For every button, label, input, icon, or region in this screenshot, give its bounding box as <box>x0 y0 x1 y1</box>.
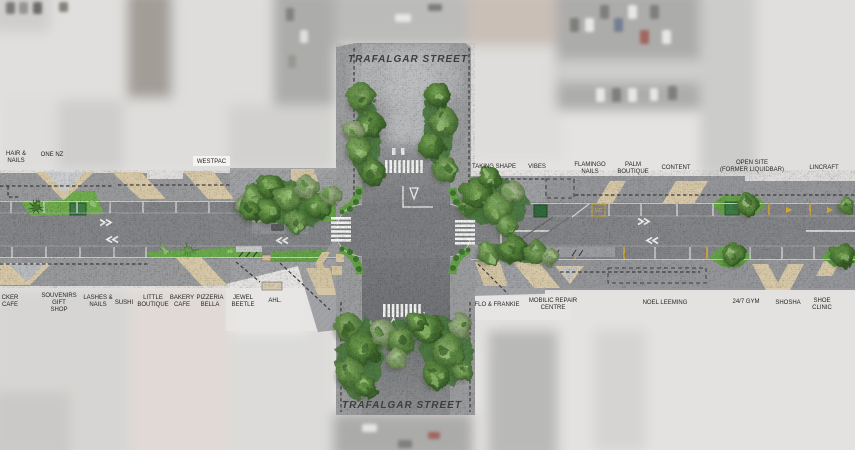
svg-text:TAKING SHAPE: TAKING SHAPE <box>472 164 516 170</box>
svg-text:CAFE: CAFE <box>174 302 190 308</box>
svg-text:CENTRE: CENTRE <box>541 305 566 311</box>
svg-text:CLINIC: CLINIC <box>812 305 832 311</box>
svg-text:SHOP: SHOP <box>50 307 67 313</box>
svg-text:NOEL LEEMING: NOEL LEEMING <box>643 300 688 306</box>
svg-text:LASHES &: LASHES & <box>83 295 112 301</box>
svg-text:WESTPAC: WESTPAC <box>197 159 227 165</box>
svg-text:JEWEL: JEWEL <box>233 295 254 301</box>
svg-text:FLO & FRANKIE: FLO & FRANKIE <box>474 302 519 308</box>
svg-text:NAILS: NAILS <box>7 158 24 164</box>
svg-text:PIZZERIA: PIZZERIA <box>196 295 223 301</box>
svg-text:SUSHI: SUSHI <box>115 300 134 306</box>
svg-text:SOUVENIRS: SOUVENIRS <box>41 293 76 299</box>
svg-text:VIBES: VIBES <box>528 164 546 170</box>
svg-text:ONE NZ: ONE NZ <box>41 152 64 158</box>
svg-text:SHOE: SHOE <box>813 298 830 304</box>
svg-text:BOUTIQUE: BOUTIQUE <box>137 302 168 308</box>
svg-text:BEETLE: BEETLE <box>231 302 254 308</box>
svg-text:OPEN SITE: OPEN SITE <box>736 160 768 166</box>
svg-text:LITTLE: LITTLE <box>143 295 163 301</box>
svg-text:FLAMINGO: FLAMINGO <box>574 162 606 168</box>
svg-text:HAIR &: HAIR & <box>6 151 26 157</box>
svg-text:NAILS: NAILS <box>89 302 106 308</box>
svg-text:BAKERY: BAKERY <box>170 295 194 301</box>
svg-text:CAFE: CAFE <box>2 302 18 308</box>
svg-text:CKER: CKER <box>2 295 19 301</box>
svg-text:BELLA: BELLA <box>201 302 220 308</box>
svg-text:PALM: PALM <box>625 162 641 168</box>
svg-text:SHOSHA: SHOSHA <box>775 300 800 306</box>
svg-text:AHL.: AHL. <box>268 298 282 304</box>
svg-text:24/7 GYM: 24/7 GYM <box>732 299 759 305</box>
svg-text:GIFT: GIFT <box>52 300 66 306</box>
svg-text:MOBILIC REPAIR: MOBILIC REPAIR <box>529 298 578 304</box>
